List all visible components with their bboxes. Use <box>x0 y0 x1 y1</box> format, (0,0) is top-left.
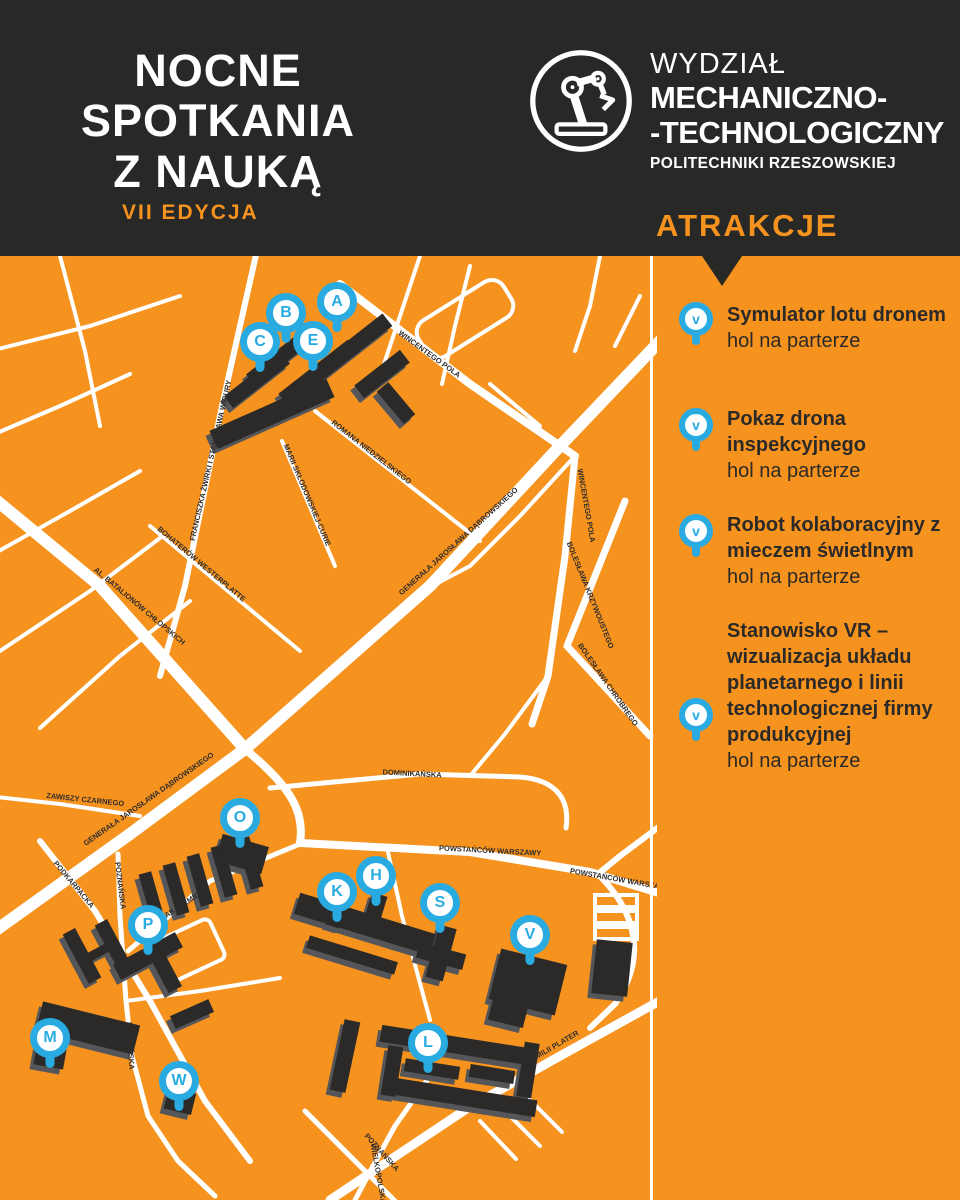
pin-letter: v <box>679 302 713 336</box>
event-logo-line1: NOCNE <box>68 46 368 96</box>
attraction-item-1: vSymulator lotu dronemhol na parterze <box>679 302 948 378</box>
attraction-location: hol na parterze <box>727 748 948 774</box>
faculty-line4: POLITECHNIKI RZESZOWSKIEJ <box>650 155 944 173</box>
map-marker-k: K <box>317 872 357 930</box>
v-location-pin-icon: v <box>679 406 715 484</box>
event-logo-line3: Z NAUKĄ <box>68 147 368 197</box>
v-location-pin-icon: v <box>679 302 715 378</box>
street-label: BOLESŁAWA CHROBREGO <box>576 641 640 727</box>
attractions-title: ATRAKCJE <box>656 208 839 244</box>
pin-letter: A <box>317 282 357 322</box>
attractions-pointer-triangle <box>702 256 742 286</box>
header: NOCNE SPOTKANIA Z NAUKĄ VII EDYCJA <box>0 0 960 256</box>
street-label: MARII SKŁODOWSKIEJ-CURIE <box>282 443 333 548</box>
attraction-text: Pokaz drona inspekcyjnegohol na parterze <box>727 406 948 484</box>
street-label: ROMANA NIEDZIELSKIEGO <box>330 418 414 486</box>
v-location-pin-icon: v <box>679 618 715 774</box>
map-marker-h: H <box>356 856 396 914</box>
pin-letter: W <box>159 1061 199 1101</box>
map-marker-c: C <box>240 322 280 380</box>
map-marker-p: P <box>128 905 168 963</box>
map-marker-e: E <box>293 321 333 379</box>
attraction-location: hol na parterze <box>727 328 948 354</box>
pin-letter: O <box>220 798 260 838</box>
pin-letter: P <box>128 905 168 945</box>
building <box>591 939 632 996</box>
faculty-name: WYDZIAŁ MECHANICZNO- -TECHNOLOGICZNY POL… <box>650 48 944 173</box>
pin-letter: S <box>420 883 460 923</box>
street-label: BOHATERÓW WESTERPLATTE <box>156 525 248 604</box>
event-edition: VII EDYCJA <box>122 201 368 225</box>
attraction-text: Symulator lotu dronemhol na parterze <box>727 302 948 378</box>
pin-letter: E <box>293 321 333 361</box>
pin-letter: L <box>408 1023 448 1063</box>
map-marker-l: L <box>408 1023 448 1081</box>
attraction-title: Pokaz drona inspekcyjnego <box>727 406 948 458</box>
street-label: WINCENTEGO POLA <box>576 468 598 544</box>
map-marker-w: W <box>159 1061 199 1119</box>
pin-letter: V <box>510 915 550 955</box>
attraction-title: Robot kolaboracyjny z mieczem świetlnym <box>727 512 948 564</box>
faculty-line3: -TECHNOLOGICZNY <box>650 116 944 151</box>
attraction-text: Robot kolaboracyjny z mieczem świetlnymh… <box>727 512 948 590</box>
v-location-pin-icon: v <box>679 512 715 590</box>
pin-letter: v <box>679 408 713 442</box>
campus-map: WINCENTEGO POLAWINCENTEGO POLAROMANA NIE… <box>0 256 657 1200</box>
attraction-location: hol na parterze <box>727 564 948 590</box>
pin-letter: M <box>30 1018 70 1058</box>
attraction-title: Symulator lotu dronem <box>727 302 948 328</box>
attraction-item-2: vPokaz drona inspekcyjnegohol na parterz… <box>679 406 948 484</box>
faculty-logo: WYDZIAŁ MECHANICZNO- -TECHNOLOGICZNY POL… <box>528 48 944 173</box>
attraction-item-4: vStanowisko VR – wizualizacja układu pla… <box>679 618 948 774</box>
street-label: FRANCISZKA ŻWIRKI I STANISŁAWA WIGURY <box>188 379 234 541</box>
map-marker-s: S <box>420 883 460 941</box>
pin-letter: v <box>679 698 713 732</box>
street-label: GENERAŁA JAROSŁAWA DĄBROWSKIEGO <box>397 485 520 597</box>
street-label: POZNAŃSKA <box>113 862 128 911</box>
event-logo-line2: SPOTKANIA <box>68 96 368 146</box>
pin-letter: C <box>240 322 280 362</box>
attractions-sidebar: vSymulator lotu dronemhol na parterzevPo… <box>657 256 960 1200</box>
attraction-list: vSymulator lotu dronemhol na parterzevPo… <box>679 302 948 774</box>
street-label: POZNAŃSKA <box>125 1022 137 1070</box>
attraction-title: Stanowisko VR – wizualizacja układu plan… <box>727 618 948 748</box>
pin-letter: H <box>356 856 396 896</box>
attraction-text: Stanowisko VR – wizualizacja układu plan… <box>727 618 948 774</box>
poster: NOCNE SPOTKANIA Z NAUKĄ VII EDYCJA <box>0 0 960 1200</box>
map-sidebar-divider <box>650 256 653 1200</box>
faculty-line1: WYDZIAŁ <box>650 48 944 81</box>
attraction-location: hol na parterze <box>727 458 948 484</box>
event-logo: NOCNE SPOTKANIA Z NAUKĄ VII EDYCJA <box>68 46 368 225</box>
attraction-item-3: vRobot kolaboracyjny z mieczem świetlnym… <box>679 512 948 590</box>
pin-letter: K <box>317 872 357 912</box>
faculty-line2: MECHANICZNO- <box>650 81 944 116</box>
robot-arm-icon <box>528 48 634 154</box>
map-marker-m: M <box>30 1018 70 1076</box>
map-marker-v: V <box>510 915 550 973</box>
map-marker-o: O <box>220 798 260 856</box>
pin-letter: v <box>679 514 713 548</box>
